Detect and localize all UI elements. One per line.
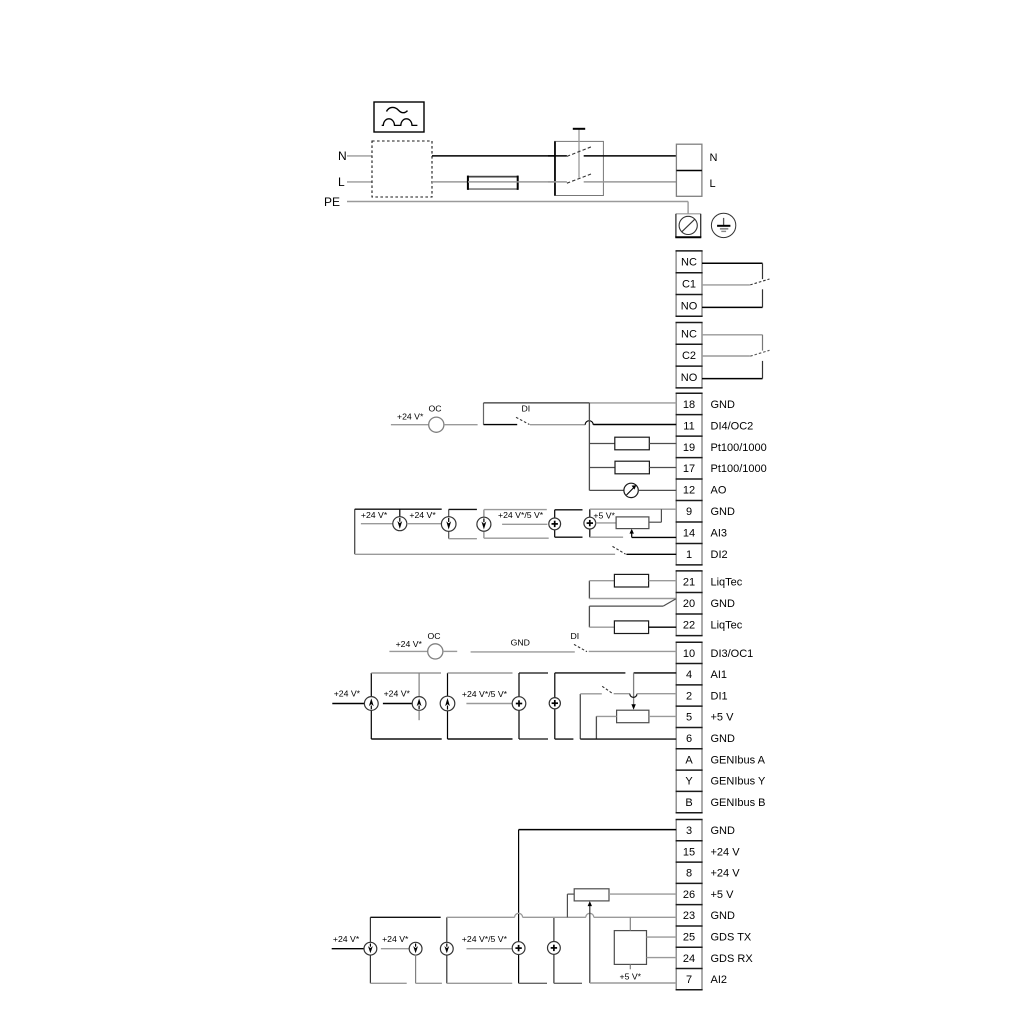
svg-text:Pt100/1000: Pt100/1000: [711, 442, 767, 454]
svg-text:DI3/OC1: DI3/OC1: [711, 648, 754, 660]
svg-text:GND: GND: [711, 598, 736, 610]
svg-text:5: 5: [686, 712, 692, 724]
svg-text:18: 18: [683, 399, 695, 411]
svg-text:+24 V*: +24 V*: [384, 689, 411, 699]
svg-text:25: 25: [683, 931, 695, 943]
svg-text:+24 V: +24 V: [711, 868, 741, 880]
svg-text:GENIbus Y: GENIbus Y: [711, 776, 766, 788]
svg-text:DI: DI: [522, 404, 531, 414]
svg-text:GENIbus A: GENIbus A: [711, 754, 766, 766]
svg-text:L: L: [338, 175, 345, 189]
svg-text:GND: GND: [711, 825, 736, 837]
svg-text:GDS TX: GDS TX: [711, 931, 752, 943]
svg-text:+5 V*: +5 V*: [620, 972, 642, 982]
svg-text:A: A: [685, 754, 693, 766]
svg-text:Pt100/1000: Pt100/1000: [711, 463, 767, 475]
svg-text:23: 23: [683, 910, 695, 922]
svg-text:14: 14: [683, 528, 695, 540]
svg-text:C2: C2: [682, 350, 696, 362]
svg-text:DI1: DI1: [711, 690, 728, 702]
svg-text:NC: NC: [681, 257, 697, 269]
svg-text:C1: C1: [682, 279, 696, 291]
svg-text:7: 7: [686, 974, 692, 986]
svg-text:19: 19: [683, 442, 695, 454]
svg-text:GND: GND: [711, 506, 736, 518]
svg-text:6: 6: [686, 733, 692, 745]
svg-text:NO: NO: [681, 300, 698, 312]
svg-text:+24 V*: +24 V*: [409, 510, 436, 520]
svg-text:OC: OC: [429, 404, 442, 414]
svg-text:+24 V*: +24 V*: [333, 934, 360, 944]
svg-text:+5 V: +5 V: [711, 889, 735, 901]
svg-text:GND: GND: [711, 399, 736, 411]
svg-text:3: 3: [686, 825, 692, 837]
svg-text:B: B: [685, 797, 692, 809]
svg-text:GND: GND: [511, 637, 530, 647]
svg-text:AI2: AI2: [711, 974, 728, 986]
svg-text:AI1: AI1: [711, 669, 728, 681]
svg-text:21: 21: [683, 577, 695, 589]
svg-text:OC: OC: [428, 631, 441, 641]
svg-text:DI4/OC2: DI4/OC2: [711, 420, 754, 432]
svg-text:10: 10: [683, 648, 695, 660]
svg-text:NC: NC: [681, 328, 697, 340]
svg-text:N: N: [710, 152, 718, 164]
svg-text:DI2: DI2: [711, 549, 728, 561]
svg-text:GND: GND: [711, 733, 736, 745]
svg-text:Y: Y: [685, 776, 693, 788]
svg-text:26: 26: [683, 889, 695, 901]
svg-text:+24 V*/5 V*: +24 V*/5 V*: [462, 934, 508, 944]
svg-text:NO: NO: [681, 372, 698, 384]
svg-text:+24 V*/5 V*: +24 V*/5 V*: [462, 689, 508, 699]
svg-text:17: 17: [683, 463, 695, 475]
svg-text:22: 22: [683, 620, 695, 632]
svg-text:+24 V*/5 V*: +24 V*/5 V*: [498, 510, 544, 520]
svg-text:8: 8: [686, 868, 692, 880]
svg-text:AO: AO: [711, 485, 727, 497]
svg-text:11: 11: [683, 420, 694, 432]
svg-text:GENIbus B: GENIbus B: [711, 797, 766, 809]
svg-text:+5 V: +5 V: [711, 712, 735, 724]
svg-text:DI: DI: [571, 631, 580, 641]
svg-text:N: N: [338, 149, 347, 163]
svg-text:2: 2: [686, 690, 692, 702]
svg-text:24: 24: [683, 953, 695, 965]
svg-text:+24 V*: +24 V*: [382, 934, 409, 944]
svg-text:L: L: [710, 178, 716, 190]
svg-text:+5 V*: +5 V*: [593, 511, 615, 521]
svg-text:+24 V*: +24 V*: [361, 510, 388, 520]
svg-text:PE: PE: [324, 195, 340, 209]
svg-text:+24 V*: +24 V*: [396, 639, 423, 649]
svg-text:GDS RX: GDS RX: [711, 953, 754, 965]
svg-text:20: 20: [683, 598, 695, 610]
svg-text:15: 15: [683, 846, 695, 858]
svg-text:LiqTec: LiqTec: [711, 577, 743, 589]
svg-text:LiqTec: LiqTec: [711, 620, 743, 632]
svg-text:9: 9: [686, 506, 692, 518]
svg-text:+24 V*: +24 V*: [334, 689, 361, 699]
svg-text:+24 V*: +24 V*: [397, 412, 424, 422]
svg-text:GND: GND: [711, 910, 736, 922]
svg-text:12: 12: [683, 485, 695, 497]
svg-text:1: 1: [686, 549, 692, 561]
svg-text:4: 4: [686, 669, 692, 681]
svg-text:+24 V: +24 V: [711, 846, 741, 858]
svg-text:AI3: AI3: [711, 528, 728, 540]
